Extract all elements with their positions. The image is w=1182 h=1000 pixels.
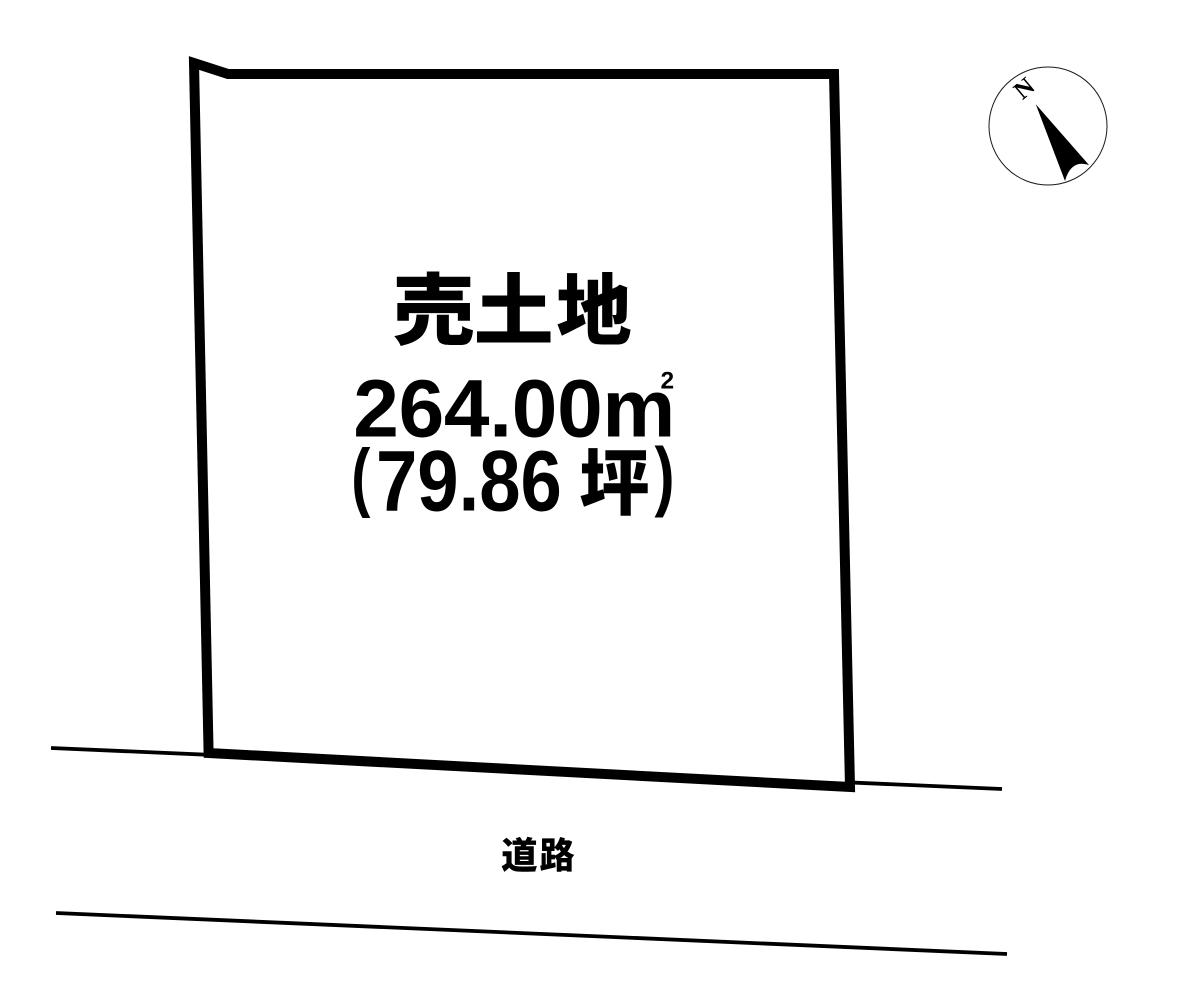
svg-text:2: 2 <box>661 368 675 395</box>
svg-text:): ) <box>655 433 675 519</box>
svg-text:79.86: 79.86 <box>376 434 562 530</box>
svg-text:(: ( <box>351 434 370 519</box>
